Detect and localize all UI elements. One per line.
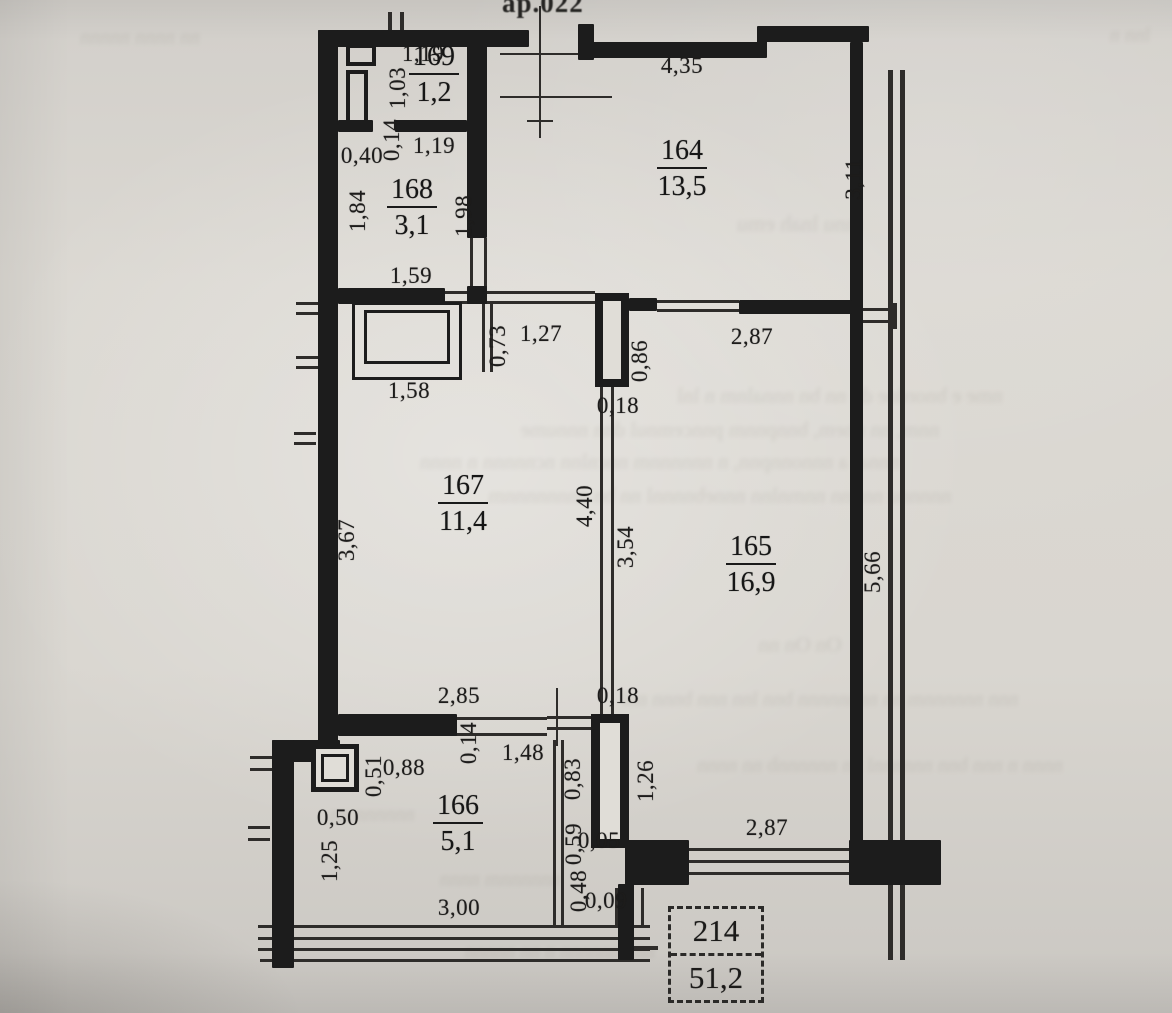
dimension-label: 1,25: [317, 840, 343, 882]
dimension-label: 5,66: [860, 551, 886, 593]
window-or-jamb-line: [388, 12, 392, 30]
bleed-through-text: nnn nnnnnnm nn nnnnnnnn bnn lnn nnn bnnn…: [621, 689, 1019, 712]
window-or-jamb-line: [527, 120, 553, 122]
window-or-jamb-line: [484, 238, 487, 290]
window-or-jamb-line: [634, 946, 658, 950]
wall-segment: [318, 30, 338, 746]
window-or-jamb-line: [296, 366, 318, 369]
window-or-jamb-line: [689, 872, 851, 875]
bleed-through-text: On On nn: [758, 633, 842, 658]
bleed-through-text: lnn n: [1109, 25, 1151, 48]
dimension-label: 0,40: [341, 143, 383, 169]
room-number: 166: [433, 791, 483, 824]
window-or-jamb-line: [260, 959, 650, 962]
dimension-label: 1,27: [520, 321, 562, 347]
wall-segment: [629, 298, 657, 311]
dimension-label: 2,87: [731, 324, 773, 350]
window-or-jamb-line: [600, 387, 603, 716]
summary-box: 214 51,2: [668, 906, 764, 1003]
window-or-jamb-line: [539, 6, 541, 138]
room-area: 1,2: [409, 78, 459, 108]
bleed-through-text: nnnnnnm nnnn: [439, 869, 561, 892]
wall-segment: [765, 26, 869, 42]
fixture-box: [346, 70, 368, 130]
bleed-through-text: nme e bnordne dn nn bn nnnalnm n lnl: [677, 384, 1004, 409]
room-label: 16711,4: [438, 471, 488, 537]
dimension-label: 1,26: [633, 760, 659, 802]
window-or-jamb-line: [258, 948, 650, 951]
window-or-jamb-line: [657, 300, 739, 303]
window-or-jamb-line: [296, 302, 318, 305]
room-area: 11,4: [438, 507, 488, 537]
room-label: 16413,5: [657, 136, 707, 202]
dimension-label: 0,86: [627, 340, 653, 382]
dimension-label: 0,51: [361, 755, 387, 797]
window-or-jamb-line: [657, 309, 739, 312]
dimension-label: 0,09: [585, 888, 627, 914]
dimension-label: 0,73: [485, 325, 511, 367]
bleed-through-text: mnu lnah emu: [736, 211, 863, 237]
room-area: 3,1: [387, 211, 437, 241]
dimension-label: 0,05: [578, 828, 620, 854]
dimension-label: 4,35: [661, 53, 703, 79]
dimension-label: 4,40: [572, 485, 598, 527]
bleed-through-text: nn nnnn nnnnn: [79, 27, 200, 50]
wall-segment: [849, 840, 941, 885]
room-number: 165: [726, 532, 776, 565]
wall-segment: [272, 740, 294, 968]
window-or-jamb-line: [294, 432, 316, 435]
window-or-jamb-line: [893, 303, 897, 329]
window-or-jamb-line: [258, 937, 650, 940]
apartment-total-area: 51,2: [671, 953, 761, 1000]
dimension-label: 1,48: [502, 740, 544, 766]
fixture-box: [364, 310, 450, 364]
dimension-label: 0,14: [456, 722, 482, 764]
dimension-label: 1,19: [413, 133, 455, 159]
window-or-jamb-line: [470, 238, 473, 290]
dimension-label: 3,54: [613, 526, 639, 568]
dimension-label: 1,19: [402, 41, 444, 67]
wall-segment: [338, 714, 457, 736]
dimension-label: 1,98: [451, 195, 477, 237]
window-or-jamb-line: [547, 727, 591, 730]
dimension-label: 0,50: [317, 805, 359, 831]
room-area: 16,9: [726, 568, 776, 598]
floor-plan: ар.022 mnu lnah emunme e bnordne dn nn b…: [0, 0, 1172, 1013]
window-or-jamb-line: [888, 70, 893, 960]
vent-shaft: [595, 293, 629, 387]
window-or-jamb-line: [900, 70, 905, 960]
room-number: 164: [657, 136, 707, 169]
dimension-label: 3,11: [841, 158, 867, 199]
dimension-label: 1,59: [390, 263, 432, 289]
dimension-label: 1,58: [388, 378, 430, 404]
room-number: 167: [438, 471, 488, 504]
window-or-jamb-line: [689, 860, 851, 863]
bleed-through-text: nnnnnu nnnnn nnmnlnn nnnebnnnnl nn bn nn…: [488, 484, 952, 509]
window-or-jamb-line: [455, 717, 547, 720]
window-or-jamb-line: [294, 442, 316, 445]
wall-segment: [739, 300, 852, 314]
window-or-jamb-line: [547, 716, 591, 719]
window-or-jamb-line: [248, 838, 270, 841]
wall-segment: [467, 286, 487, 304]
room-label: 1683,1: [387, 175, 437, 241]
window-or-jamb-line: [258, 925, 650, 928]
window-or-jamb-line: [863, 308, 893, 311]
window-or-jamb-line: [296, 356, 318, 359]
dimension-label: 0,18: [597, 393, 639, 419]
dimension-label: 0,18: [597, 683, 639, 709]
wall-segment: [395, 120, 467, 132]
dimension-label: 2,87: [746, 815, 788, 841]
window-or-jamb-line: [500, 96, 612, 98]
dimension-label: 0,88: [383, 755, 425, 781]
dimension-label: 1,03: [385, 67, 411, 109]
bleed-through-text: nnnn n nnn bnn nnnnnnl nn nnnnnnb nn nnn…: [697, 755, 1064, 778]
bleed-through-text: nnnal a nnnonnpnn, n nnnnnnm nncnlnn ncn…: [419, 450, 900, 475]
dimension-label: 2,85: [438, 683, 480, 709]
window-or-jamb-line: [250, 756, 272, 759]
room-area: 13,5: [657, 172, 707, 202]
window-or-jamb-line: [553, 740, 556, 926]
window-or-jamb-line: [248, 826, 270, 829]
bleed-through-text: nnm, nn nnem, bnnpnnm pnncemnul dnn nnnu…: [520, 418, 940, 443]
room-label: 1665,1: [433, 791, 483, 857]
apartment-number: 214: [671, 909, 761, 953]
dimension-label: 3,67: [334, 519, 360, 561]
window-or-jamb-line: [296, 312, 318, 315]
room-number: 168: [387, 175, 437, 208]
top-edge-label: ар.022: [502, 0, 584, 19]
fixture-box: [321, 754, 349, 782]
dimension-label: 3,00: [438, 895, 480, 921]
room-label: 16516,9: [726, 532, 776, 598]
window-or-jamb-line: [400, 12, 404, 30]
window-or-jamb-line: [250, 768, 272, 771]
window-or-jamb-line: [863, 320, 893, 323]
room-area: 5,1: [433, 827, 483, 857]
window-or-jamb-line: [641, 888, 644, 928]
window-or-jamb-line: [689, 848, 851, 851]
wall-segment: [625, 840, 689, 885]
dimension-label: 0,83: [560, 758, 586, 800]
fixture-box: [346, 44, 376, 66]
dimension-label: 1,84: [345, 190, 371, 232]
